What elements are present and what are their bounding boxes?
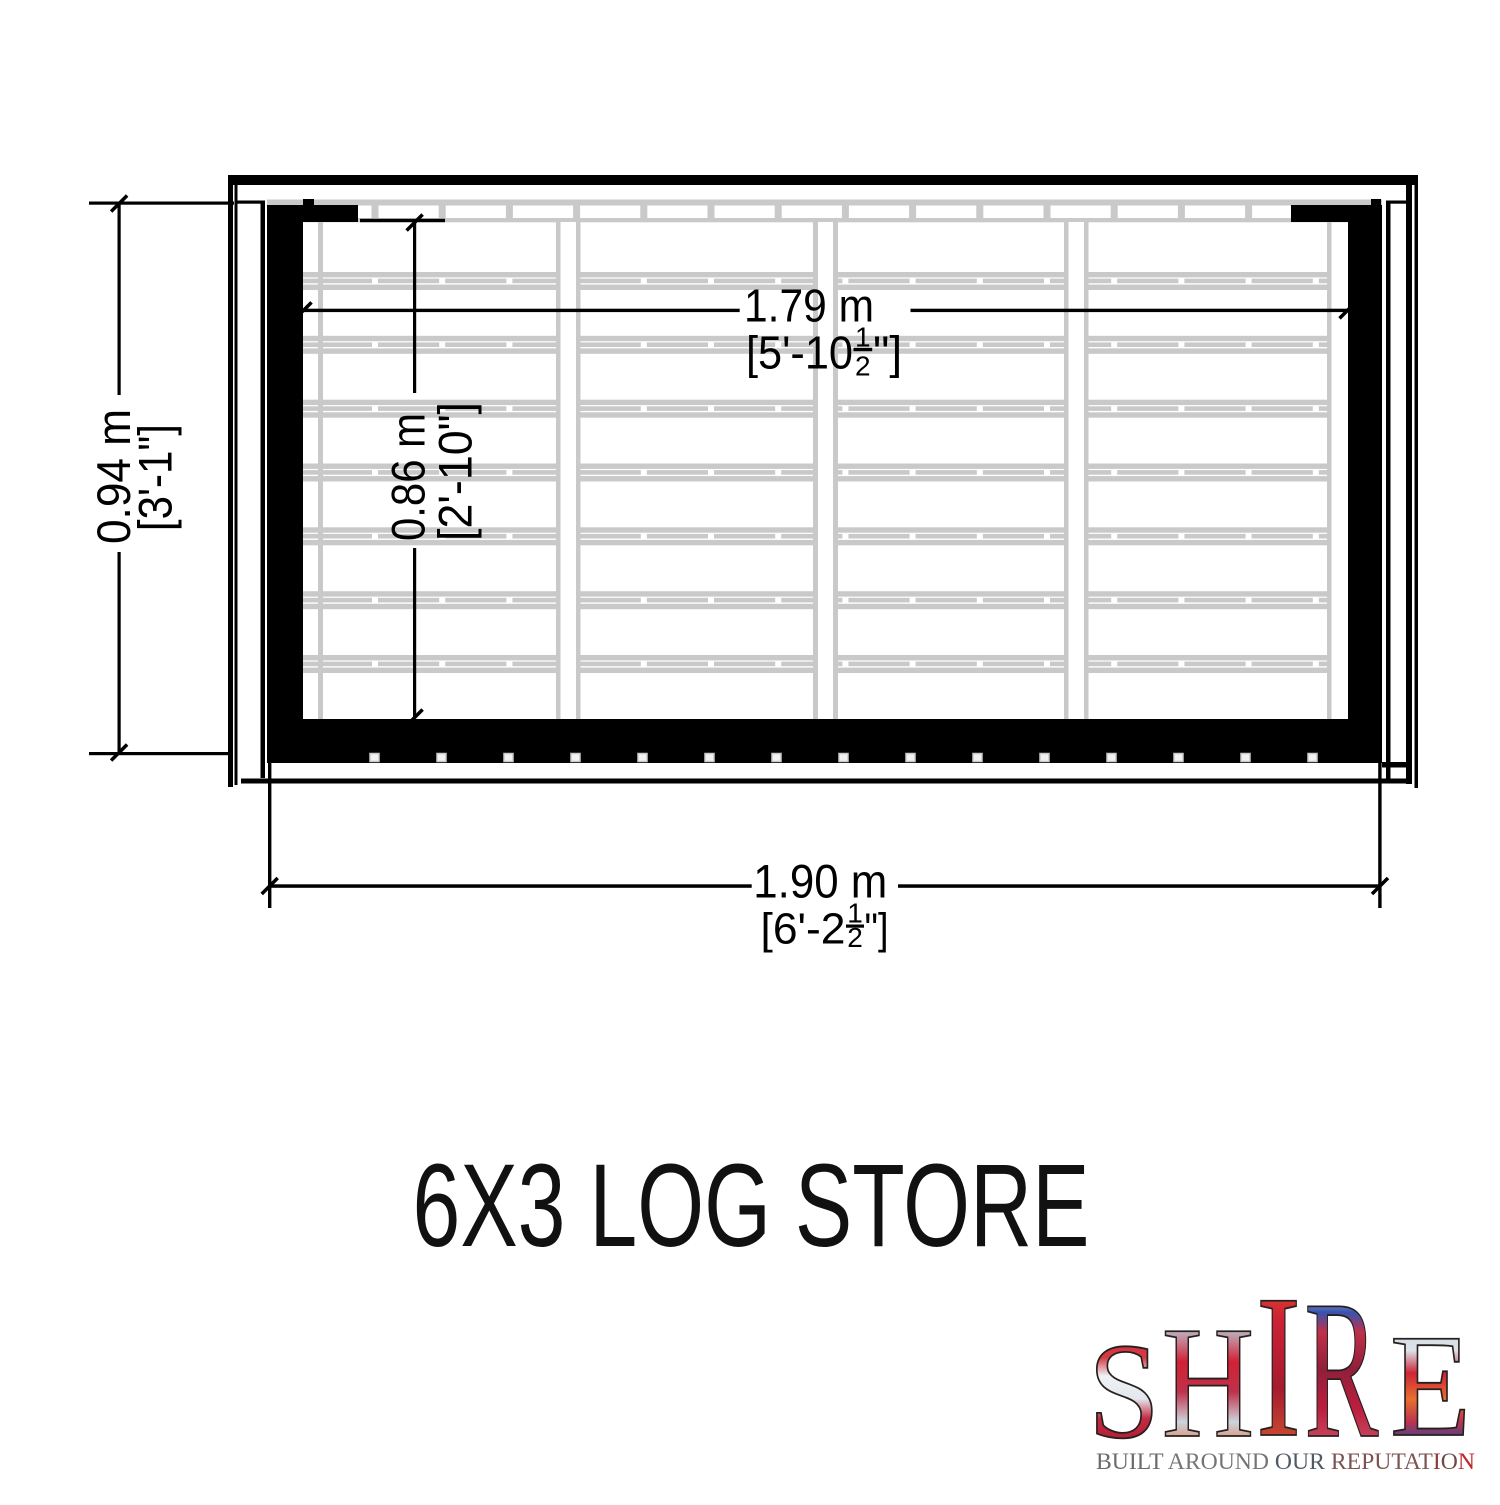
svg-text:[3'-1"]: [3'-1"] xyxy=(129,424,182,531)
svg-text:2: 2 xyxy=(847,922,863,953)
svg-text:H: H xyxy=(1162,1295,1254,1472)
svg-text:2: 2 xyxy=(855,351,871,382)
svg-text:"]: "] xyxy=(873,327,902,379)
svg-text:6X3 LOG STORE: 6X3 LOG STORE xyxy=(413,1140,1090,1272)
svg-text:[2'-10"]: [2'-10"] xyxy=(429,402,482,541)
svg-text:[6'-2: [6'-2 xyxy=(761,905,846,954)
svg-text:0.86 m: 0.86 m xyxy=(382,413,435,541)
svg-text:I: I xyxy=(1256,1252,1301,1480)
svg-text:S: S xyxy=(1088,1315,1160,1466)
svg-text:BUILT AROUND OUR REPUTATION: BUILT AROUND OUR REPUTATION xyxy=(1096,1449,1475,1474)
svg-text:R: R xyxy=(1305,1260,1379,1480)
svg-text:1.90 m: 1.90 m xyxy=(753,855,887,908)
svg-text:[5'-10: [5'-10 xyxy=(746,327,853,379)
svg-text:"]: "] xyxy=(865,905,889,954)
svg-text:E: E xyxy=(1390,1305,1471,1468)
